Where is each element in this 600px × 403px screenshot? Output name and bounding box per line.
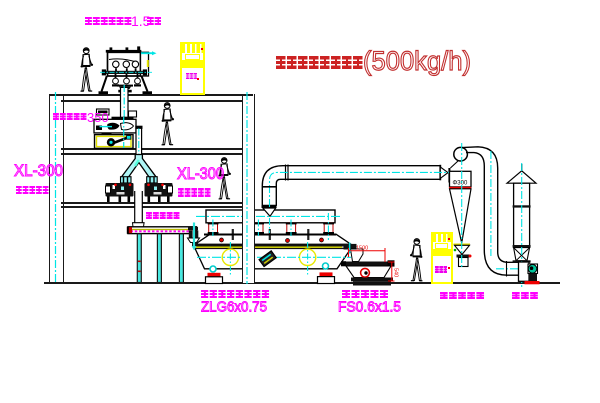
svg-text:ZLG6x0.75: ZLG6x0.75 (201, 300, 267, 316)
svg-text:FS0.6x1.5: FS0.6x1.5 (338, 300, 401, 316)
svg-text:XL-300: XL-300 (14, 162, 63, 180)
svg-text:1500: 1500 (356, 246, 368, 252)
svg-text:540: 540 (393, 268, 399, 277)
svg-text:XL-300: XL-300 (177, 165, 224, 183)
svg-text:(500kg/h): (500kg/h) (363, 46, 471, 76)
